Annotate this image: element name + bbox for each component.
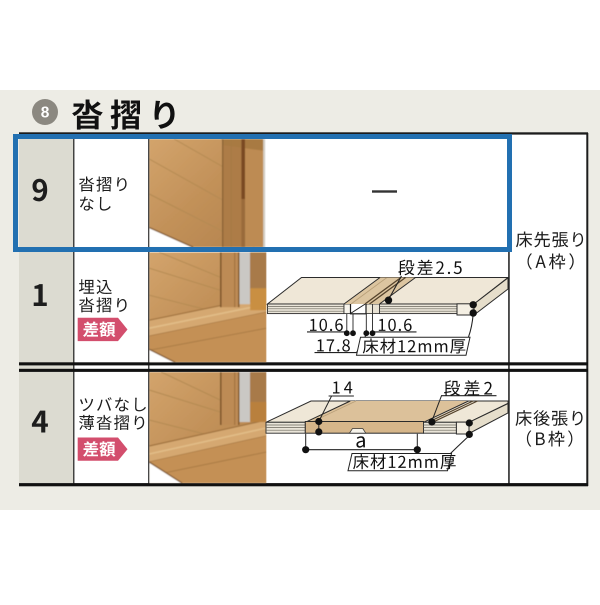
svg-text:8: 8: [41, 105, 50, 122]
